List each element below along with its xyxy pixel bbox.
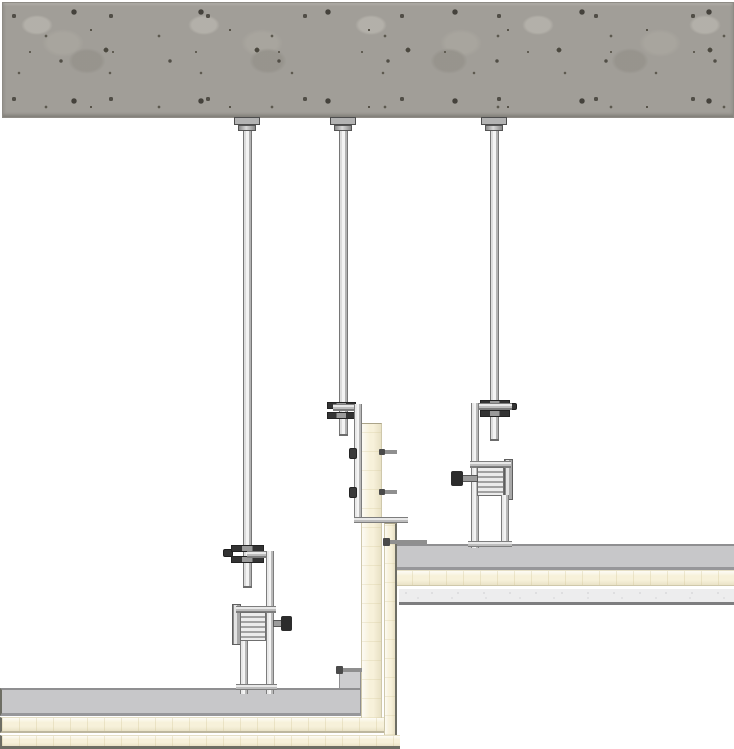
screw-bulkhead-right-2-head bbox=[379, 489, 385, 495]
screw-upper-channel-head bbox=[383, 538, 390, 546]
bulkhead-board-inner bbox=[361, 423, 382, 718]
hanger-rod-middle bbox=[339, 118, 348, 436]
hanger-strap-middle-foot bbox=[354, 517, 408, 523]
hanger-rod-right bbox=[490, 118, 499, 441]
locking-bolt-right-shaft bbox=[462, 475, 478, 482]
nonius-hanger-left-foot bbox=[236, 684, 277, 690]
nonius-hanger-right-foot bbox=[468, 541, 512, 547]
upper-ceiling-plasterboard bbox=[395, 570, 734, 586]
rod-anchor-middle-nut bbox=[334, 125, 352, 131]
upper-ceiling-finishing-board bbox=[399, 589, 734, 605]
screw-bulkhead-right-1-head bbox=[379, 449, 385, 455]
nonius-clip-middle-lower bbox=[327, 412, 356, 419]
lower-ceiling-plasterboard-2 bbox=[0, 735, 400, 749]
rod-anchor-right bbox=[481, 117, 507, 125]
lower-ceiling-plasterboard-1 bbox=[0, 717, 397, 733]
locking-bolt-right-head bbox=[451, 471, 463, 486]
nonius-hanger-left-body bbox=[240, 612, 266, 641]
screw-bulkhead-left-2 bbox=[349, 487, 357, 498]
lower-ceiling-furring-channel bbox=[0, 688, 362, 716]
screw-bulkhead-left-1 bbox=[349, 448, 357, 459]
upper-ceiling-furring-channel bbox=[397, 544, 734, 570]
rod-anchor-left-nut bbox=[238, 125, 256, 131]
ceiling-detail-drawing bbox=[0, 0, 734, 749]
nonius-hanger-right-body bbox=[477, 467, 504, 496]
rod-anchor-left bbox=[234, 117, 260, 125]
nonius-clip-right-lower bbox=[480, 410, 510, 417]
screw-lower-channel-head bbox=[336, 666, 343, 674]
hanger-strap-middle bbox=[354, 404, 362, 520]
rod-anchor-middle bbox=[330, 117, 356, 125]
nonius-hanger-right-leg bbox=[501, 495, 509, 547]
bulkhead-board-outer bbox=[384, 523, 397, 735]
rod-anchor-right-nut bbox=[485, 125, 503, 131]
concrete-soffit bbox=[2, 2, 734, 118]
screw-upper-channel-shaft bbox=[386, 540, 427, 544]
hanger-rod-left bbox=[243, 118, 252, 588]
locking-bolt-left-head bbox=[281, 616, 292, 631]
